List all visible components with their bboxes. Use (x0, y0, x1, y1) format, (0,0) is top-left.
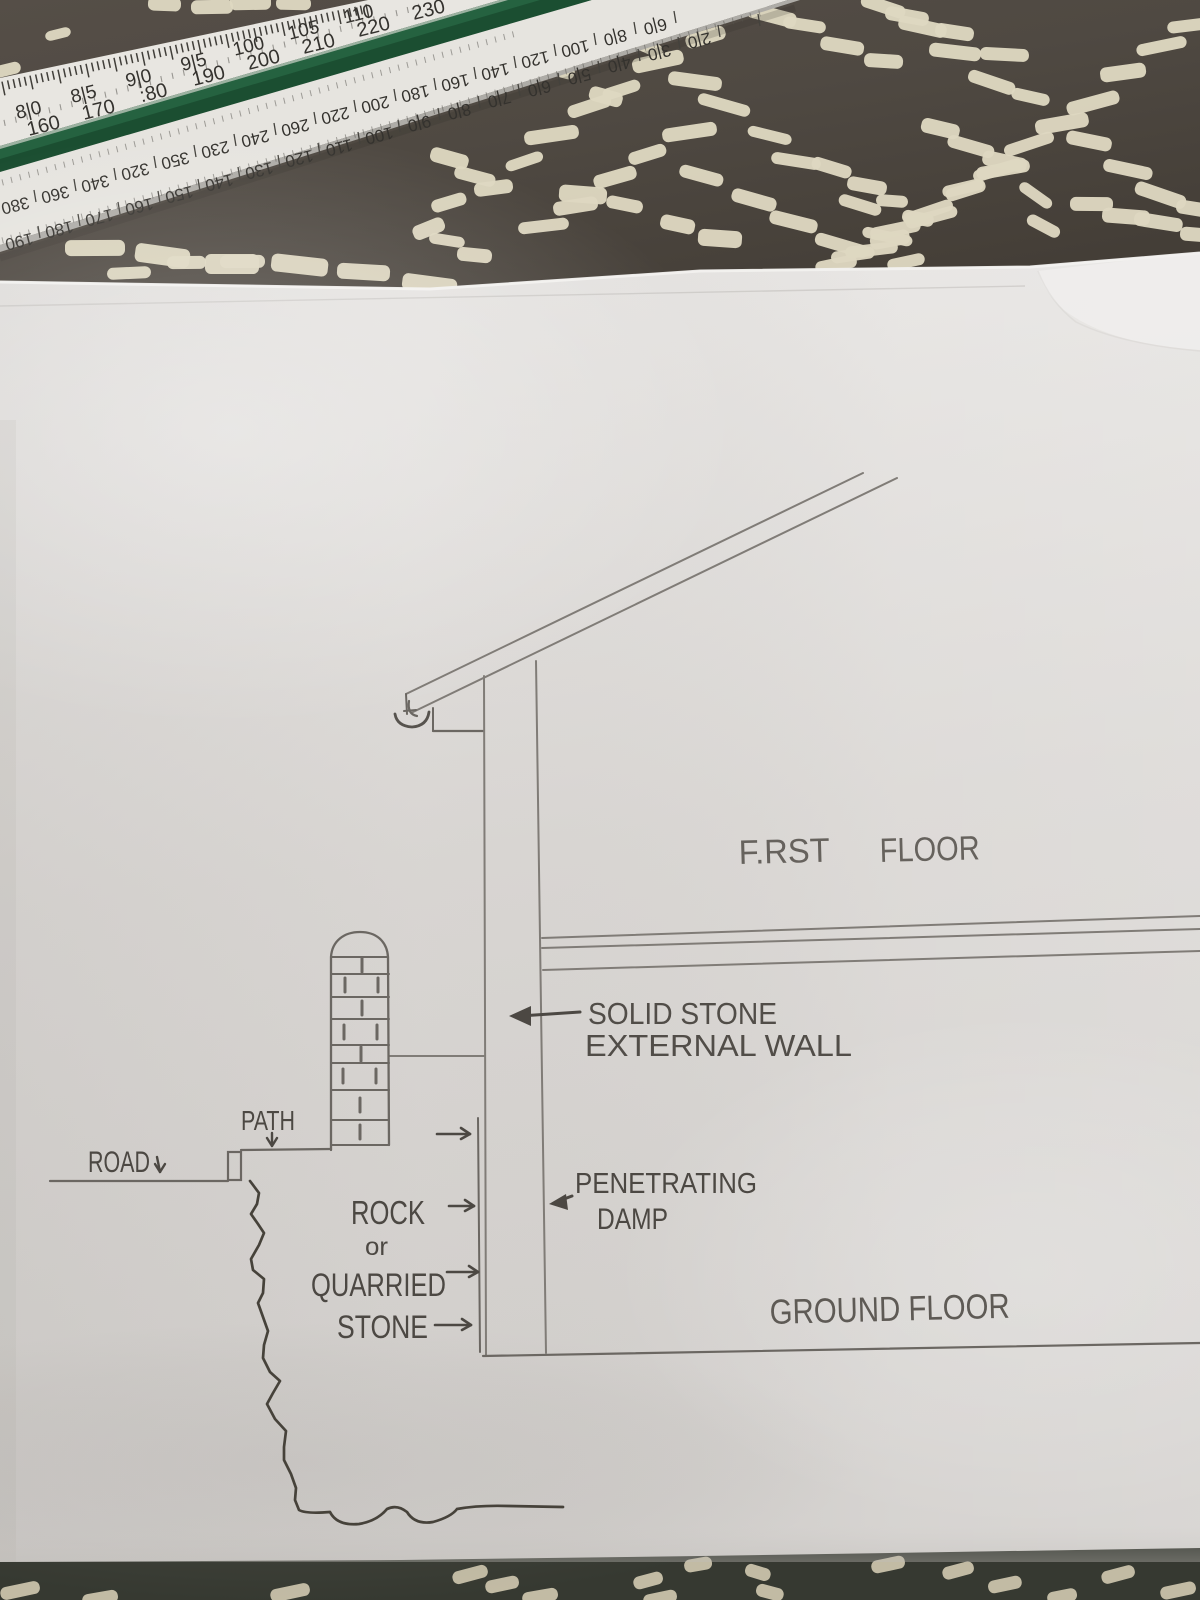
svg-text:GROUND FLOOR: GROUND FLOOR (769, 1287, 1010, 1332)
svg-text:FLOOR: FLOOR (879, 829, 980, 870)
svg-text:DAMP: DAMP (597, 1203, 668, 1236)
svg-text:EXTERNAL WALL: EXTERNAL WALL (585, 1028, 852, 1063)
svg-text:PENETRATING: PENETRATING (575, 1168, 757, 1200)
svg-text:ROCK: ROCK (351, 1194, 425, 1231)
svg-text:QUARRIED: QUARRIED (311, 1267, 446, 1303)
svg-text:ROAD: ROAD (88, 1146, 150, 1179)
svg-text:STONE: STONE (337, 1309, 428, 1345)
svg-text:or: or (365, 1233, 388, 1261)
svg-text:PATH: PATH (241, 1105, 295, 1136)
svg-text:SOLID STONE: SOLID STONE (588, 996, 777, 1031)
svg-text:F.RST: F.RST (738, 832, 830, 872)
